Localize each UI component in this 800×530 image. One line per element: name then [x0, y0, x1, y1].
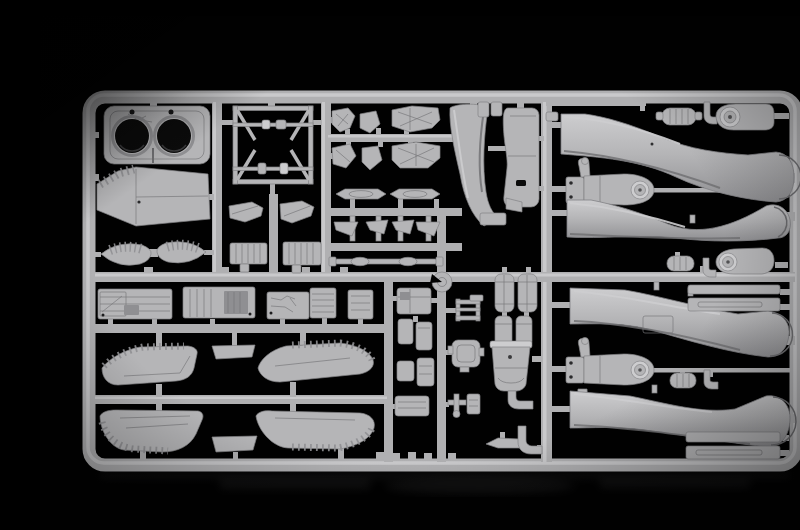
sprue-photo-canvas: Light grey injection-moulded plastic mod…	[40, 16, 800, 530]
lighting-vignette	[40, 16, 800, 530]
model-kit-sprue-photo: Light grey injection-moulded plastic mod…	[40, 16, 800, 530]
